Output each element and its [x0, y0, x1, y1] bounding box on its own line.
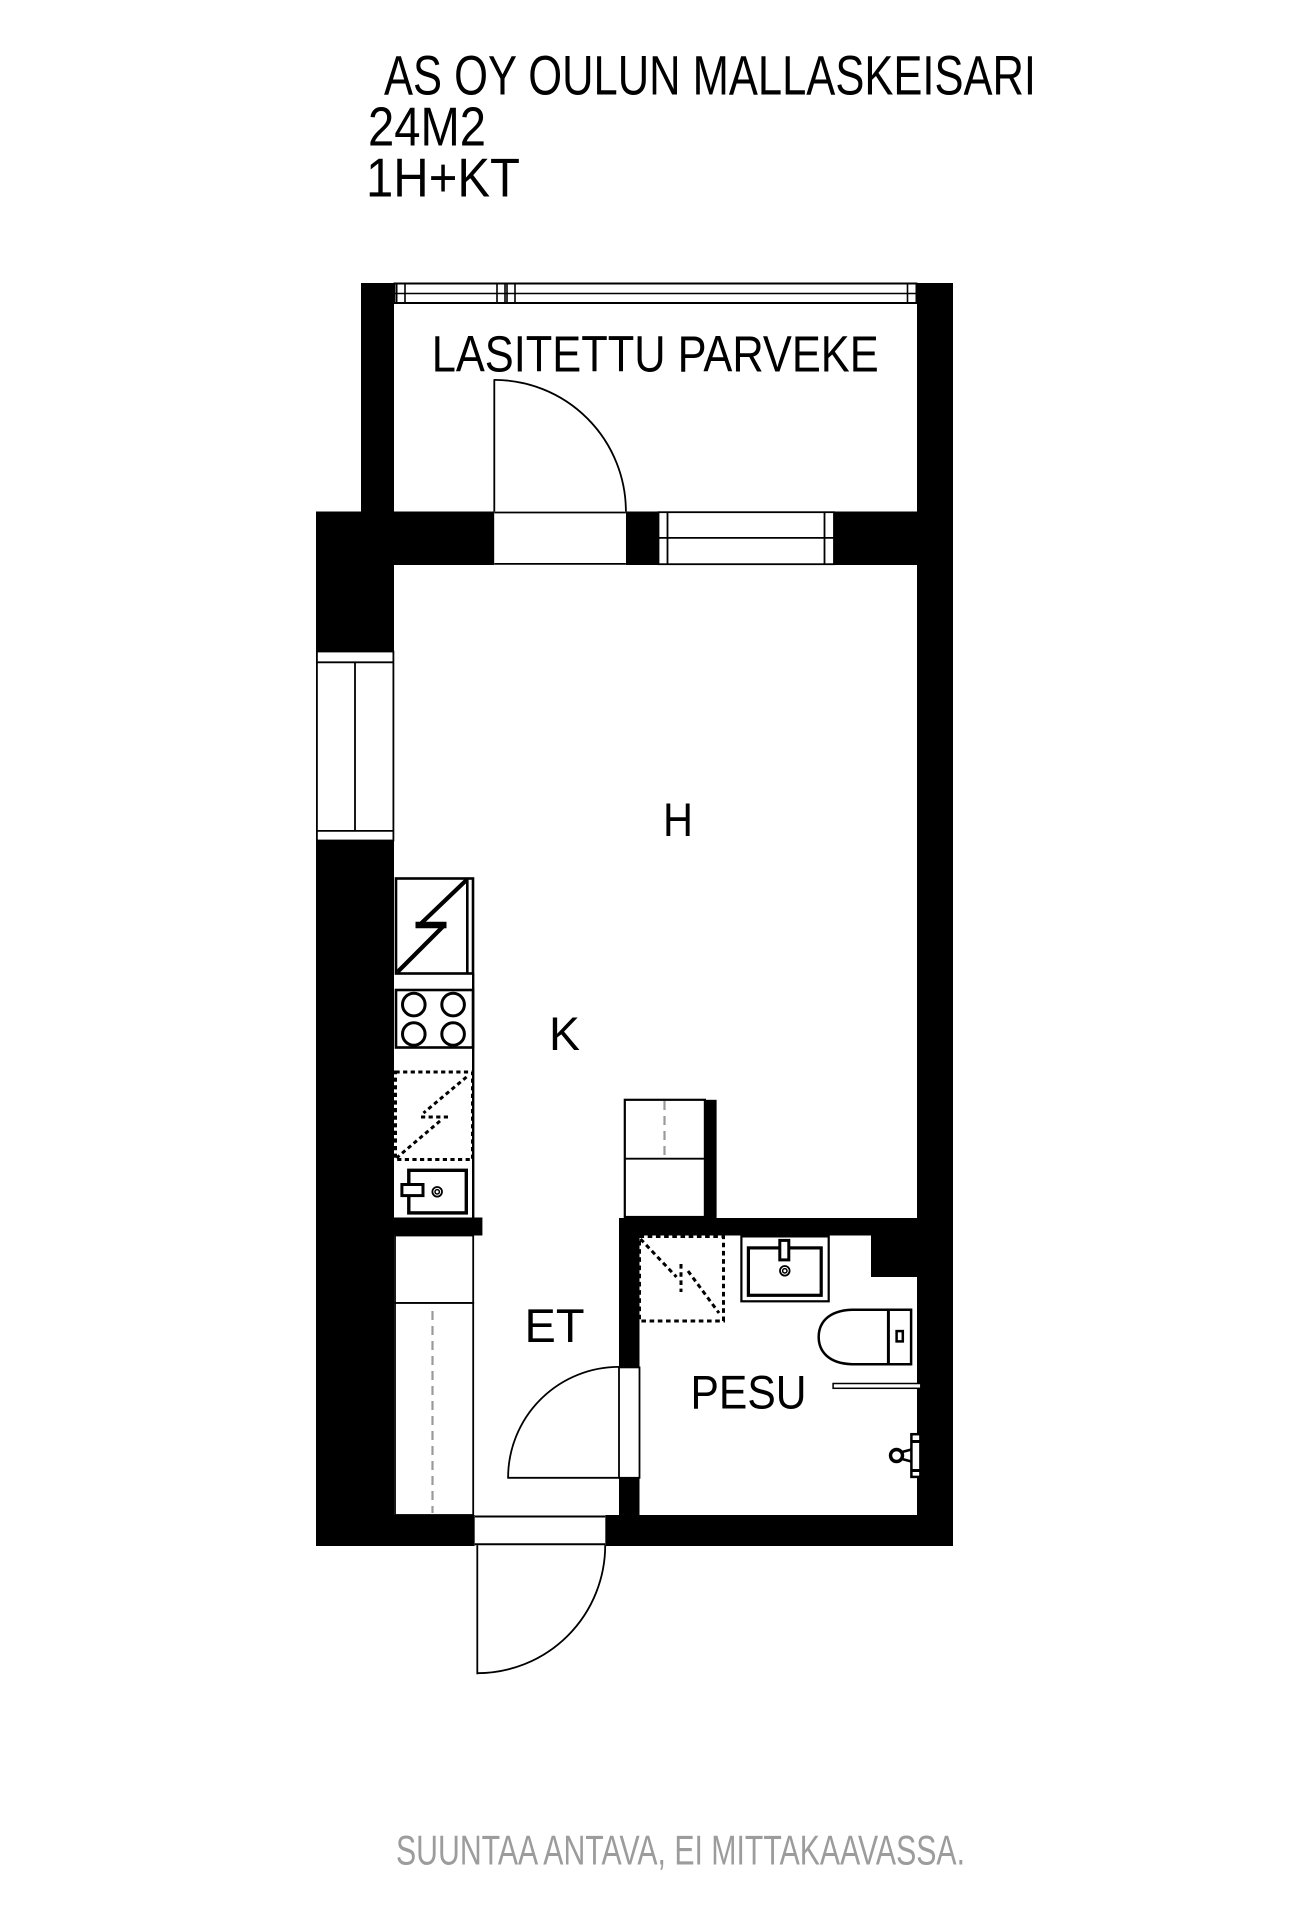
svg-text:K: K: [549, 1007, 580, 1060]
svg-text:1H+KT: 1H+KT: [366, 146, 520, 208]
svg-text:LASITETTU PARVEKE: LASITETTU PARVEKE: [432, 326, 879, 383]
svg-text:ET: ET: [525, 1299, 585, 1352]
svg-text:PESU: PESU: [691, 1366, 807, 1419]
svg-text:SUUNTAA ANTAVA, EI MITTAKAAVAS: SUUNTAA ANTAVA, EI MITTAKAAVASSA.: [396, 1827, 965, 1874]
svg-text:H: H: [663, 793, 693, 846]
